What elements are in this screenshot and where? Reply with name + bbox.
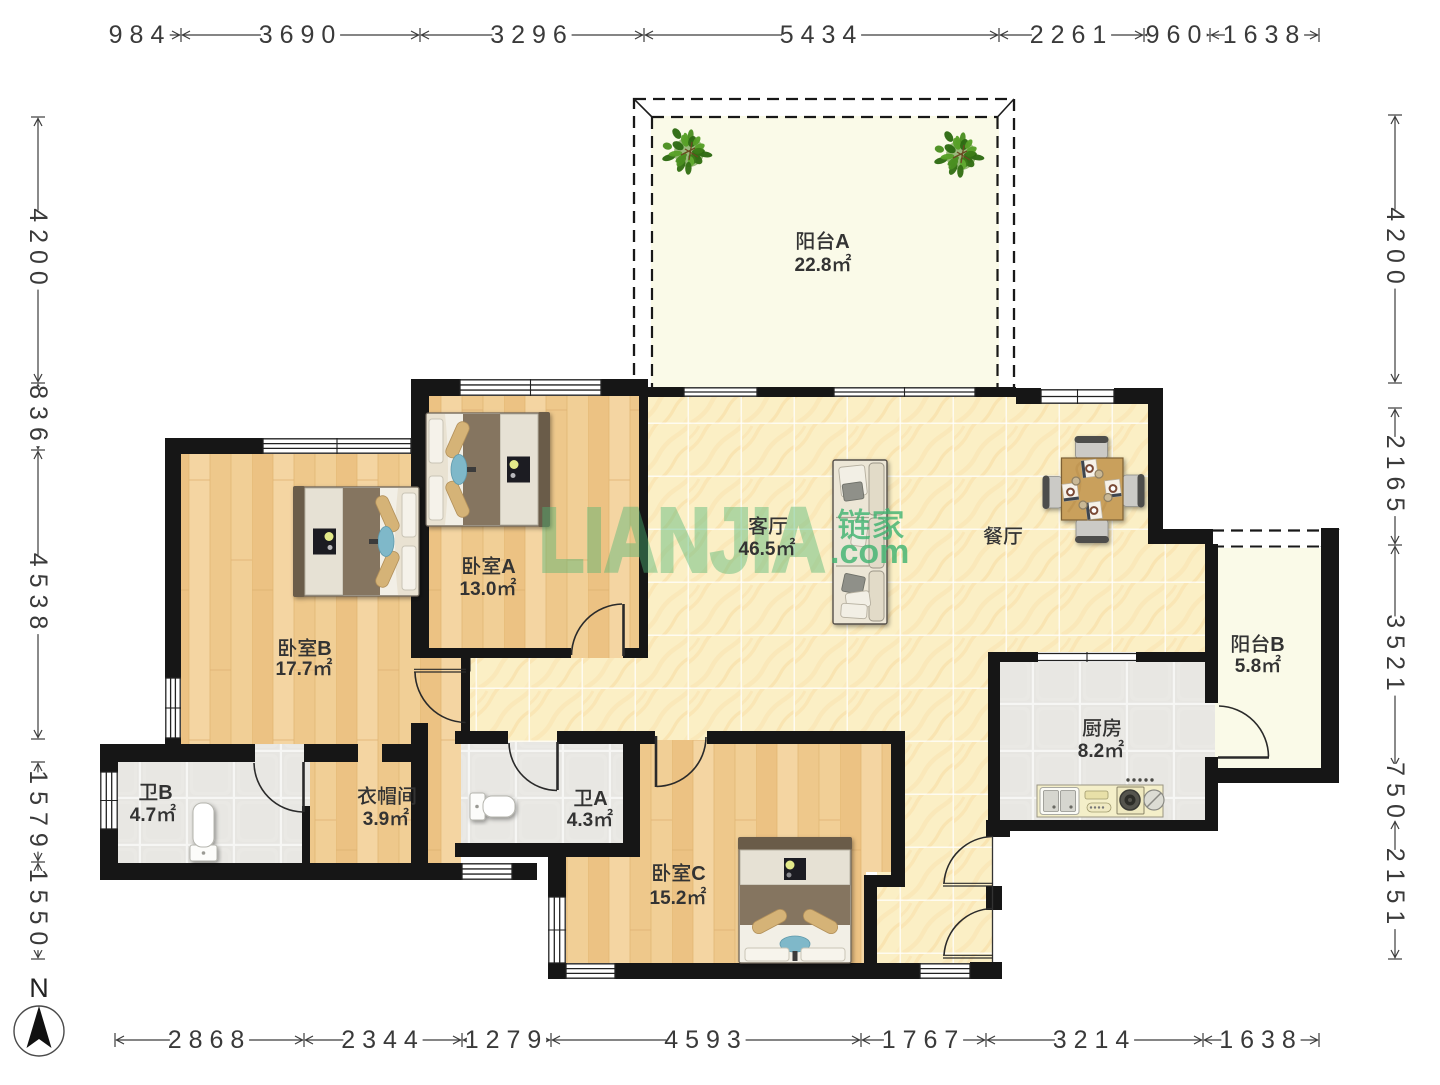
svg-text:13.0: 13.0 bbox=[460, 579, 497, 600]
svg-text:3296: 3296 bbox=[490, 21, 574, 49]
svg-text:A: A bbox=[835, 231, 849, 253]
svg-text:3521: 3521 bbox=[1381, 614, 1409, 698]
svg-text:4.3: 4.3 bbox=[567, 810, 593, 831]
svg-text:2868: 2868 bbox=[168, 1026, 252, 1054]
svg-text:836: 836 bbox=[24, 385, 52, 448]
svg-text:4.7: 4.7 bbox=[130, 805, 156, 826]
svg-text:4200: 4200 bbox=[1381, 207, 1409, 291]
svg-text:5.8: 5.8 bbox=[1235, 656, 1261, 677]
svg-text:2261: 2261 bbox=[1030, 21, 1114, 49]
svg-text:960: 960 bbox=[1146, 21, 1209, 49]
svg-text:.com: .com bbox=[830, 533, 909, 571]
svg-text:2344: 2344 bbox=[341, 1026, 425, 1054]
svg-text:1638: 1638 bbox=[1223, 21, 1307, 49]
svg-text:2165: 2165 bbox=[1381, 435, 1409, 519]
svg-text:A: A bbox=[501, 556, 515, 578]
svg-text:1579: 1579 bbox=[24, 770, 52, 854]
svg-text:1767: 1767 bbox=[882, 1026, 966, 1054]
svg-text:5434: 5434 bbox=[780, 21, 864, 49]
svg-text:22.8: 22.8 bbox=[795, 255, 832, 276]
svg-text:4538: 4538 bbox=[24, 553, 52, 637]
svg-text:3690: 3690 bbox=[259, 21, 343, 49]
svg-text:15.2: 15.2 bbox=[650, 888, 687, 909]
svg-text:8.2: 8.2 bbox=[1078, 741, 1104, 762]
svg-text:46.5: 46.5 bbox=[739, 539, 776, 560]
svg-text:750: 750 bbox=[1381, 762, 1409, 825]
svg-text:4593: 4593 bbox=[664, 1026, 748, 1054]
svg-text:2151: 2151 bbox=[1381, 848, 1409, 932]
svg-text:3214: 3214 bbox=[1053, 1026, 1137, 1054]
svg-text:1550: 1550 bbox=[24, 869, 52, 953]
svg-text:3.9: 3.9 bbox=[363, 809, 389, 830]
svg-text:N: N bbox=[29, 973, 49, 1003]
svg-text:1638: 1638 bbox=[1219, 1026, 1303, 1054]
svg-text:984: 984 bbox=[109, 21, 172, 49]
svg-text:C: C bbox=[691, 863, 705, 885]
svg-text:4200: 4200 bbox=[24, 208, 52, 292]
svg-text:B: B bbox=[317, 638, 331, 660]
svg-text:1279: 1279 bbox=[465, 1026, 549, 1054]
svg-text:A: A bbox=[593, 788, 607, 810]
svg-text:LIANJIA: LIANJIA bbox=[539, 491, 825, 591]
svg-text:B: B bbox=[158, 782, 172, 804]
svg-text:B: B bbox=[1270, 634, 1284, 656]
svg-text:17.7: 17.7 bbox=[276, 659, 313, 680]
